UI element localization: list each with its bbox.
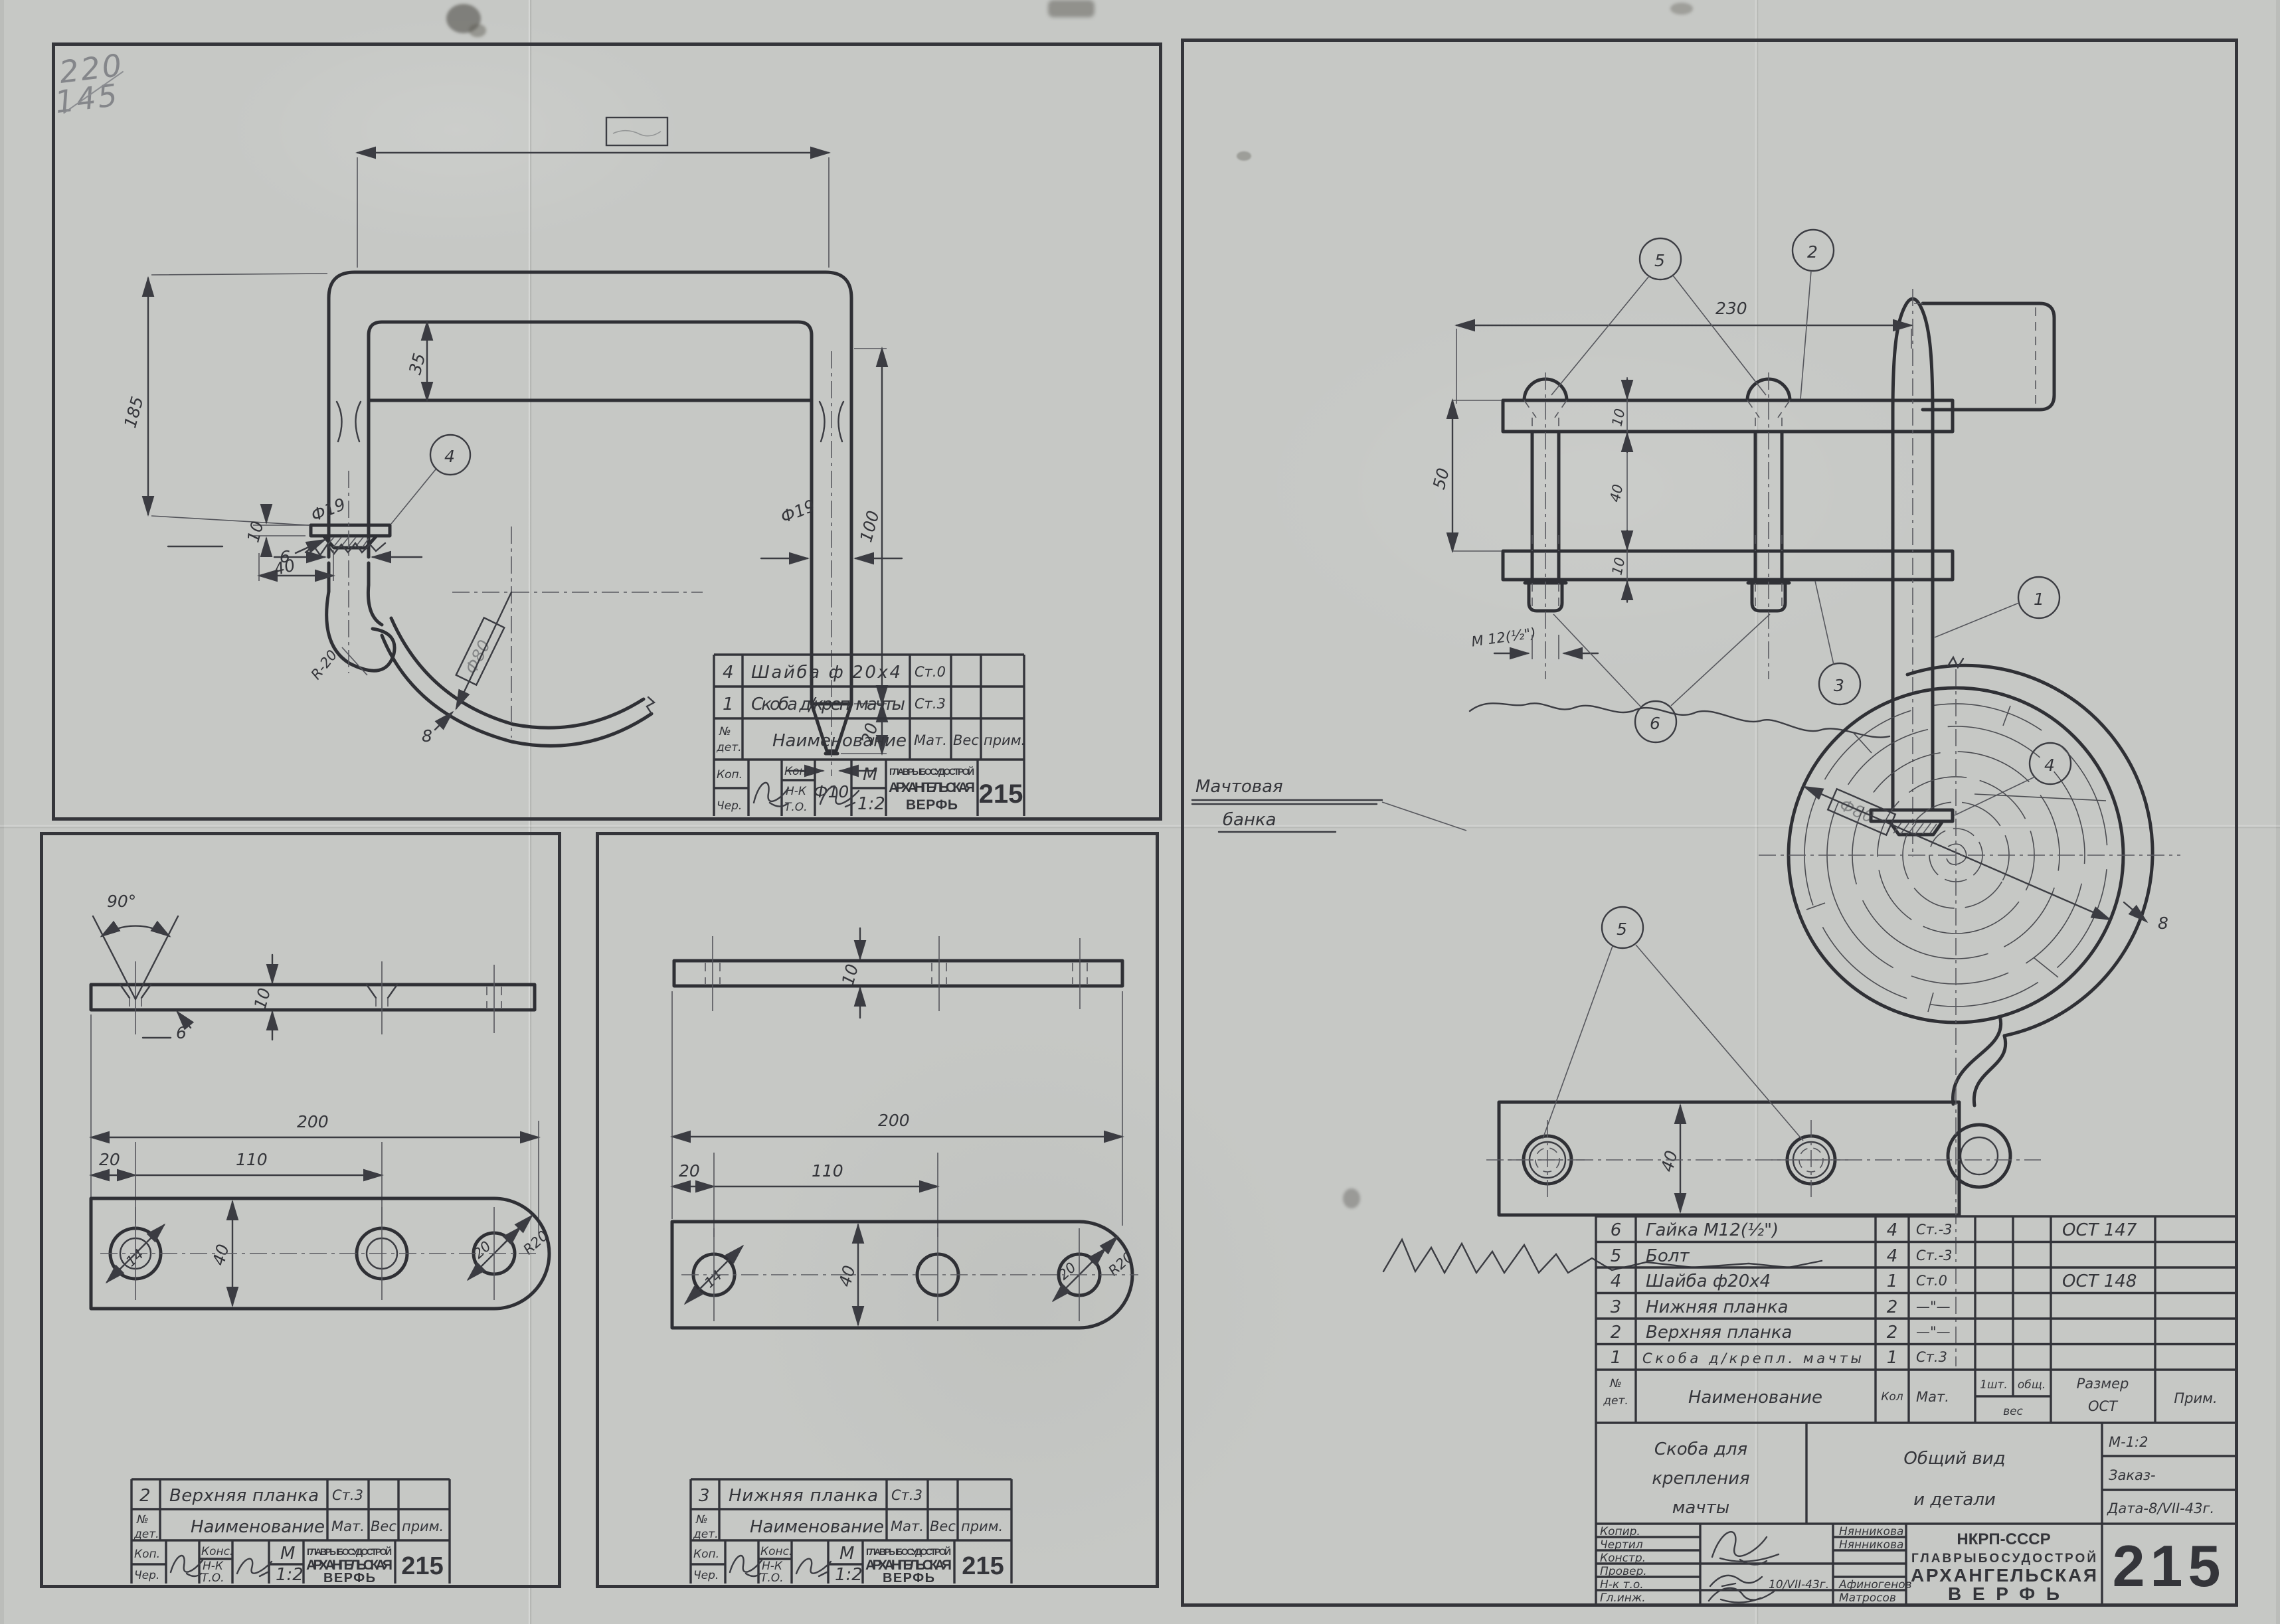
panel-upper-plate: 90° 6 10 200 20 110 14 20 R20 [40, 832, 561, 1588]
bl-h-name: Наименование [191, 1517, 325, 1537]
title-n3: мачты [1672, 1498, 1730, 1518]
tl-cher: Чер. [717, 799, 742, 813]
signature [730, 1556, 762, 1576]
stain [446, 4, 481, 33]
bl-kop: Коп. [134, 1548, 160, 1561]
org-l4: ВЕРФЬ [1948, 1583, 2060, 1603]
dim-110: 110 [812, 1161, 843, 1180]
dim-200: 200 [878, 1111, 910, 1130]
bm-scale: 1:2 [835, 1565, 863, 1585]
bm-number: 215 [962, 1552, 1004, 1580]
dim-50: 50 [1429, 466, 1453, 491]
bl-h-mat: Мат. [331, 1518, 365, 1534]
dim-hole-14: 14 [701, 1267, 725, 1291]
dim-200: 200 [297, 1112, 329, 1131]
mast-label: Мачтовая банка [1192, 777, 1466, 832]
bm-part-name: Нижняя планка [729, 1486, 878, 1506]
p6-ost: ОСТ 147 [2062, 1220, 2137, 1240]
balloon-6: 6 [1553, 614, 1770, 742]
dim-depth-6: 6 [176, 1023, 187, 1042]
balloon-6-label: 6 [1650, 714, 1660, 733]
tl-part1-mat: Ст.0 [915, 664, 946, 680]
assembly-plan: Ф80 8 5 [1383, 649, 2180, 1366]
dim-110: 110 [236, 1150, 268, 1169]
p1-mat: Ст.3 [1916, 1349, 1947, 1365]
assembly-drawing: 230 50 10 40 10 М 12(½") 5 2 [1184, 42, 2235, 1603]
bm-h-no1: № [695, 1513, 708, 1526]
balloon-5-plan: 5 [1543, 907, 1803, 1141]
bl-org1: ГЛАВРЫБОСУДОСТРОЙ [307, 1546, 392, 1557]
signature [171, 1556, 203, 1576]
bl-kons: Конс. [201, 1545, 233, 1558]
balloon-4-label: 4 [2044, 756, 2055, 775]
dim-gap-40: 40 [1607, 483, 1626, 503]
bm-h-no2: дет. [693, 1528, 719, 1541]
plate-side-view: 10 [674, 928, 1122, 1018]
bm-org1: ГЛАВРЫБОСУДОСТРОЙ [866, 1546, 951, 1557]
p2-mat: —"— [1916, 1324, 1951, 1340]
signature [237, 1559, 272, 1576]
ph-no2: дет. [1603, 1394, 1628, 1408]
bl-cher: Чер. [134, 1569, 159, 1582]
p4-qty: 1 [1887, 1271, 1898, 1291]
title-v1: Общий вид [1903, 1449, 2005, 1469]
ph-ves: вес [2003, 1405, 2023, 1418]
tl-title-block: 4 Шайба ф 20х4 Ст.0 1 Скоба д/креп. мачт… [714, 655, 1025, 816]
title-date: Дата-8/VII-43г. [2107, 1501, 2214, 1516]
ph-prim: Прим. [2174, 1390, 2217, 1406]
dim-t2-10: 10 [1609, 556, 1628, 576]
tl-org1: ГЛАВРЫБОСУДОСТРОЙ [889, 766, 974, 777]
bm-org3: ВЕРФЬ [883, 1571, 934, 1585]
role-2: Чертил [1600, 1538, 1643, 1552]
dim-t1-10: 10 [1609, 407, 1628, 428]
break-line [306, 543, 385, 555]
dim-band-8: 8 [2158, 914, 2168, 933]
strap-outer [1907, 665, 2152, 1036]
dim-90deg: 90° [107, 892, 136, 911]
upper-plate-drawing: 90° 6 10 200 20 110 14 20 R20 [43, 835, 558, 1585]
panel-assembly: 230 50 10 40 10 М 12(½") 5 2 [1181, 39, 2238, 1607]
stain [1670, 3, 1693, 15]
dim-thick-10: 10 [838, 962, 862, 987]
drawing-number: 215 [2113, 1533, 2226, 1599]
bl-part-name: Верхняя планка [169, 1486, 319, 1506]
org-l1: НКРП-СССР [1957, 1530, 2050, 1548]
tl-m: М [863, 765, 877, 785]
p5-name: Болт [1646, 1246, 1690, 1266]
bm-kons: Конс. [760, 1545, 792, 1558]
title-n1: Скоба для [1654, 1439, 1747, 1459]
p1-qty: 1 [1887, 1348, 1898, 1368]
org-l2: ГЛАВРЫБОСУДОСТРОЙ [1911, 1551, 2096, 1566]
tl-nk: Н-К [786, 785, 807, 798]
title-v2: и детали [1913, 1490, 1996, 1510]
ph-v2: общ. [2018, 1378, 2046, 1392]
p2-qty: 2 [1887, 1323, 1898, 1342]
p3-qty: 2 [1887, 1297, 1898, 1317]
p1-no: 1 [1611, 1348, 1622, 1368]
shackle-drawing: 35 185 Ф19 Ф19 100 20 Ф10 [55, 46, 1159, 817]
mast-label-line1: Мачтовая [1195, 777, 1283, 797]
tape-mark [1048, 0, 1095, 17]
bolt-2 [1747, 372, 1790, 679]
dim-230: 230 [1715, 299, 1747, 318]
tl-h-mat: Мат. [914, 732, 947, 748]
bm-title-block: 3 Нижняя планка Ст.3 № дет. Наименование… [691, 1479, 1011, 1585]
dim-185: 185 [120, 394, 147, 430]
tl-scale: 1:2 [857, 794, 885, 814]
bl-h-prim: прим. [402, 1518, 444, 1534]
p4-mat: Ст.0 [1916, 1273, 1947, 1289]
p5-mat: Ст.-3 [1916, 1248, 1953, 1263]
blueprint-sheet: 220 145 [0, 0, 2280, 1624]
tl-part2-mat: Ст.3 [915, 696, 946, 712]
panel-shackle-view: 35 185 Ф19 Ф19 100 20 Ф10 [52, 42, 1162, 821]
ph-v1: 1шт. [1980, 1378, 2008, 1392]
ph-raz1: Размер [2077, 1376, 2129, 1392]
break-wave-top [1470, 703, 1889, 737]
stain [469, 24, 486, 37]
dim-width-40: 40 [835, 1263, 859, 1289]
bm-h-prim: прим. [961, 1518, 1003, 1534]
washer [1871, 810, 1953, 821]
tl-number: 215 [979, 779, 1023, 809]
balloon-2-label: 2 [1807, 242, 1818, 262]
dim-phi10: Ф10 [814, 782, 849, 801]
bl-part-mat: Ст.3 [332, 1487, 363, 1503]
p5-no: 5 [1611, 1246, 1622, 1266]
p6-no: 6 [1611, 1220, 1622, 1240]
bm-h-ves: Вес [930, 1518, 956, 1534]
tl-kon: Кон. [784, 765, 810, 778]
bl-title-block: 2 Верхняя планка Ст.3 № дет. Наименовани… [132, 1479, 450, 1585]
bl-h-no1: № [136, 1513, 149, 1526]
balloon-5-plan-label: 5 [1617, 920, 1627, 939]
tl-org2: АРХАНГЕЛЬСКАЯ [889, 780, 975, 795]
hook-eye-inner [1961, 1137, 1998, 1175]
assembly-elevation: 230 50 10 40 10 М 12(½") 5 2 [1429, 230, 2071, 857]
dim-band-8: 8 [422, 726, 432, 746]
tl-part1-no: 4 [723, 663, 734, 683]
dim-thread: М 12(½") [1470, 625, 1537, 649]
bm-h-mat: Мат. [891, 1518, 924, 1534]
role-1: Копир. [1600, 1525, 1640, 1538]
bl-scale: 1:2 [276, 1565, 304, 1585]
ph-qty: Кол [1881, 1390, 1903, 1404]
lower-plate-drawing: 10 200 20 110 14 20 R20 40 [599, 835, 1156, 1585]
bl-org3: ВЕРФЬ [323, 1571, 375, 1585]
p6-name: Гайка М12(½") [1646, 1220, 1779, 1240]
signature [1712, 1532, 1779, 1564]
panel-lower-plate: 10 200 20 110 14 20 R20 40 [596, 832, 1159, 1588]
bm-cher: Чер. [693, 1569, 719, 1582]
tl-h-no1: № [719, 725, 731, 738]
balloon-3: 3 [1815, 581, 1860, 704]
bm-nk: Н-К [762, 1560, 783, 1573]
role-name-6: Матросов [1839, 1591, 1896, 1603]
plate-side-view: 90° 6 10 [91, 892, 535, 1042]
bl-h-no2: дет. [133, 1528, 159, 1541]
tl-kop: Коп. [717, 768, 743, 781]
dim-100: 100 [856, 509, 883, 544]
tl-h-no2: дет. [716, 741, 742, 754]
p4-no: 4 [1611, 1271, 1622, 1291]
balloon-2: 2 [1793, 230, 1834, 399]
balloon-1-label: 1 [2034, 590, 2044, 609]
role-name-5: Афиногенов [1838, 1578, 1912, 1591]
bm-m: М [839, 1544, 854, 1564]
signature [754, 783, 788, 807]
dim-20-off: 20 [679, 1161, 700, 1180]
shackle-leg [1871, 289, 1953, 857]
balloon-4-label: 4 [444, 447, 455, 466]
bm-kop: Коп. [693, 1548, 719, 1561]
role-name-1: Нянникова [1839, 1525, 1903, 1538]
bl-number: 215 [401, 1552, 443, 1580]
lower-plank [1503, 551, 1953, 580]
p2-name: Верхняя планка [1646, 1323, 1792, 1342]
erased-dimension-box [606, 118, 667, 145]
role-4: Провер. [1600, 1565, 1647, 1578]
p6-mat: Ст.-3 [1916, 1222, 1953, 1238]
bm-part-no: 3 [699, 1486, 710, 1506]
p3-name: Нижняя планка [1646, 1297, 1789, 1317]
tl-h-prim: прим. [984, 732, 1025, 748]
dim-thick-10: 10 [250, 986, 274, 1011]
dim-35: 35 [405, 351, 429, 376]
p2-no: 2 [1611, 1323, 1622, 1342]
ph-name: Наименование [1688, 1388, 1822, 1408]
bl-h-ves: Вес [371, 1518, 396, 1534]
hook-eye-outer [1948, 1125, 2010, 1187]
ph-raz2: ОСТ [2088, 1398, 2119, 1414]
ph-mat: Мат. [1916, 1389, 1949, 1405]
bl-nk: Н-К [203, 1560, 224, 1573]
tl-part1-name: Шайба ф 20х4 [751, 663, 901, 683]
main-title-block: Скоба для крепления мачты Общий вид и де… [1596, 1423, 2235, 1603]
balloon-1: 1 [1935, 577, 2060, 637]
p1-name: Скоба д/крепл. мачты [1642, 1350, 1862, 1366]
p3-mat: —"— [1916, 1299, 1951, 1315]
plate-front-view: 200 20 110 14 20 R20 40 [672, 991, 1138, 1328]
balloon-5-label: 5 [1654, 251, 1665, 270]
mast-label-line2: банка [1223, 810, 1276, 830]
dim-20-off: 20 [99, 1150, 120, 1169]
bl-to: Т.О. [201, 1572, 224, 1585]
tl-h-name: Наименование [772, 731, 907, 751]
title-order: Заказ- [2109, 1467, 2156, 1483]
upper-plank [1503, 400, 1953, 432]
p4-ost: ОСТ 148 [2062, 1271, 2137, 1291]
title-scale: М-1:2 [2109, 1434, 2148, 1450]
role-6: Гл.инж. [1600, 1591, 1646, 1603]
bm-to: Т.О. [760, 1572, 784, 1585]
tl-h-ves: Вес [953, 732, 979, 748]
bl-m: М [280, 1544, 295, 1564]
dim-plank-40: 40 [1657, 1149, 1681, 1174]
balloon-3-label: 3 [1834, 676, 1844, 695]
p4-name: Шайба ф20х4 [1646, 1271, 1771, 1291]
p5-qty: 4 [1887, 1246, 1898, 1266]
tl-to: Т.О. [784, 801, 808, 814]
role-3: Констр. [1600, 1552, 1646, 1565]
title-n2: крепления [1652, 1469, 1749, 1489]
role-5: Н-к т.о. [1600, 1578, 1644, 1591]
ph-no1: № [1609, 1377, 1622, 1390]
plank-plan [1499, 1102, 1959, 1215]
signature [796, 1559, 831, 1576]
strap-neck [1953, 1019, 2005, 1105]
tl-org3: ВЕРФЬ [906, 797, 958, 813]
band-inner [391, 618, 644, 728]
dim-width-40: 40 [209, 1242, 232, 1267]
role-name-2: Нянникова [1839, 1538, 1903, 1552]
p3-no: 3 [1611, 1297, 1622, 1317]
bm-h-name: Наименование [750, 1517, 884, 1537]
role-date-5: 10/VII-43г. [1769, 1578, 1829, 1591]
org-l3: АРХАНГЕЛЬСКАЯ [1911, 1565, 2097, 1585]
bl-part-no: 2 [139, 1486, 151, 1506]
plate-front-view: 200 20 110 14 20 R20 40 [91, 1015, 551, 1309]
tl-part2-no: 1 [723, 694, 734, 714]
p6-qty: 4 [1887, 1220, 1898, 1240]
signature [1710, 1576, 1762, 1586]
tl-part2-name: Скоба д/креп. мачты [751, 694, 905, 714]
bm-part-mat: Ст.3 [891, 1487, 922, 1503]
